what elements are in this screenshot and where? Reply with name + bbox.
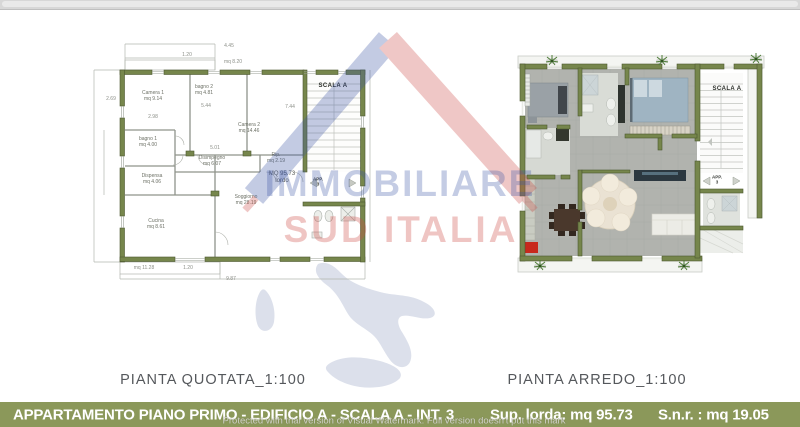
gross-area-word: lordo [269,178,295,185]
room-area: mq 28.19 [235,200,258,206]
room-area: mq 8.61 [147,224,165,230]
room-area: mq 14.46 [238,128,260,134]
right-plan-title: PIANTA ARREDO_1:100 [507,372,686,388]
dim-label: 1.20 [182,52,192,58]
dim-label: 4.45 [224,43,234,49]
app3-label-right: APP. 3 [712,175,722,186]
room-label-dispensa: Dispensa mq 4.06 [142,173,163,185]
room-label-cucina: Cucina mq 8.61 [147,218,165,230]
scrollbar-thumb[interactable] [2,1,798,7]
dim-label: 9.87 [226,276,236,282]
app3-label-left: APP. 3 [313,177,323,188]
top-scrollbar[interactable] [0,0,800,10]
dim-label: mq 8.20 [224,59,242,65]
pianta-quotata-drawing [80,36,380,301]
room-label-disimpegno: Disimpegno mq 6.07 [199,155,225,167]
app-number: 3 [712,180,722,185]
room-label-camera2: Camera 2 mq 14.46 [238,122,260,134]
dim-label: 1.20 [183,265,193,271]
room-label-rip: Rip. mq 2.19 [267,152,285,164]
room-area: mq 4.00 [139,142,157,148]
watermark-protect-text: Protected with trial version of Visual W… [223,416,566,427]
room-label-bagno2: bagno 2 mq 4.81 [195,84,213,96]
dim-label: mq 11.28 [134,265,154,271]
scala-a-label-left: SCALA A [318,83,347,89]
dim-label: 7.44 [285,104,295,110]
room-area: mq 6.07 [199,161,225,167]
bathroom-fixtures [312,207,355,238]
footer-snr: S.n.r. : mq 19.05 [658,406,769,423]
scala-a-label-right: SCALA A [712,86,741,92]
dim-label: 2.69 [106,96,116,102]
pianta-arredo-drawing [512,46,774,294]
left-plan-title: PIANTA QUOTATA_1:100 [120,372,306,388]
room-area: mq 9.14 [142,96,164,102]
room-area: mq 2.19 [267,158,285,164]
room-label-soggiorno: Soggiorno mq 28.19 [235,194,258,206]
dim-label: 5.44 [201,103,211,109]
floorplan-listing-image: SCALA A Camera 1 mq 9.14 bagno 2 mq 4.81… [0,0,800,427]
room-area: mq 4.06 [142,179,163,185]
dim-label: 2.98 [148,114,158,120]
app-number: 3 [313,182,323,187]
room-label-bagno1: bagno 1 mq 4.00 [139,136,157,148]
dim-label: 5.01 [210,145,220,151]
gross-area-note: MQ 95.73 lordo [269,171,295,185]
room-label-camera1: Camera 1 mq 9.14 [142,90,164,102]
gross-area-value: MQ 95.73 [269,171,295,178]
room-area: mq 4.81 [195,90,213,96]
